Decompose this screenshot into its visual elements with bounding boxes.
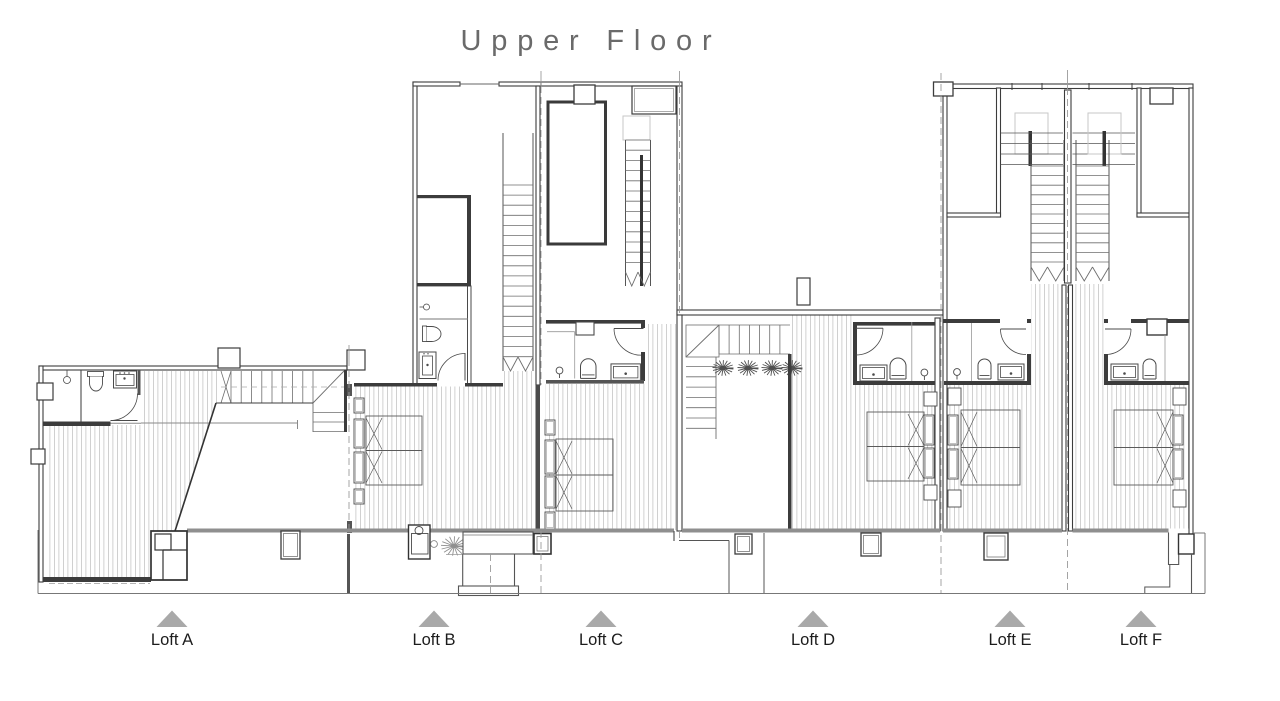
svg-text:Loft C: Loft C bbox=[579, 631, 623, 649]
svg-text:Loft F: Loft F bbox=[1120, 631, 1162, 649]
svg-text:Loft B: Loft B bbox=[412, 631, 455, 649]
svg-text:Upper Floor: Upper Floor bbox=[461, 25, 722, 57]
svg-text:Loft A: Loft A bbox=[151, 631, 193, 649]
svg-text:Loft D: Loft D bbox=[791, 631, 835, 649]
svg-text:Loft E: Loft E bbox=[988, 631, 1031, 649]
